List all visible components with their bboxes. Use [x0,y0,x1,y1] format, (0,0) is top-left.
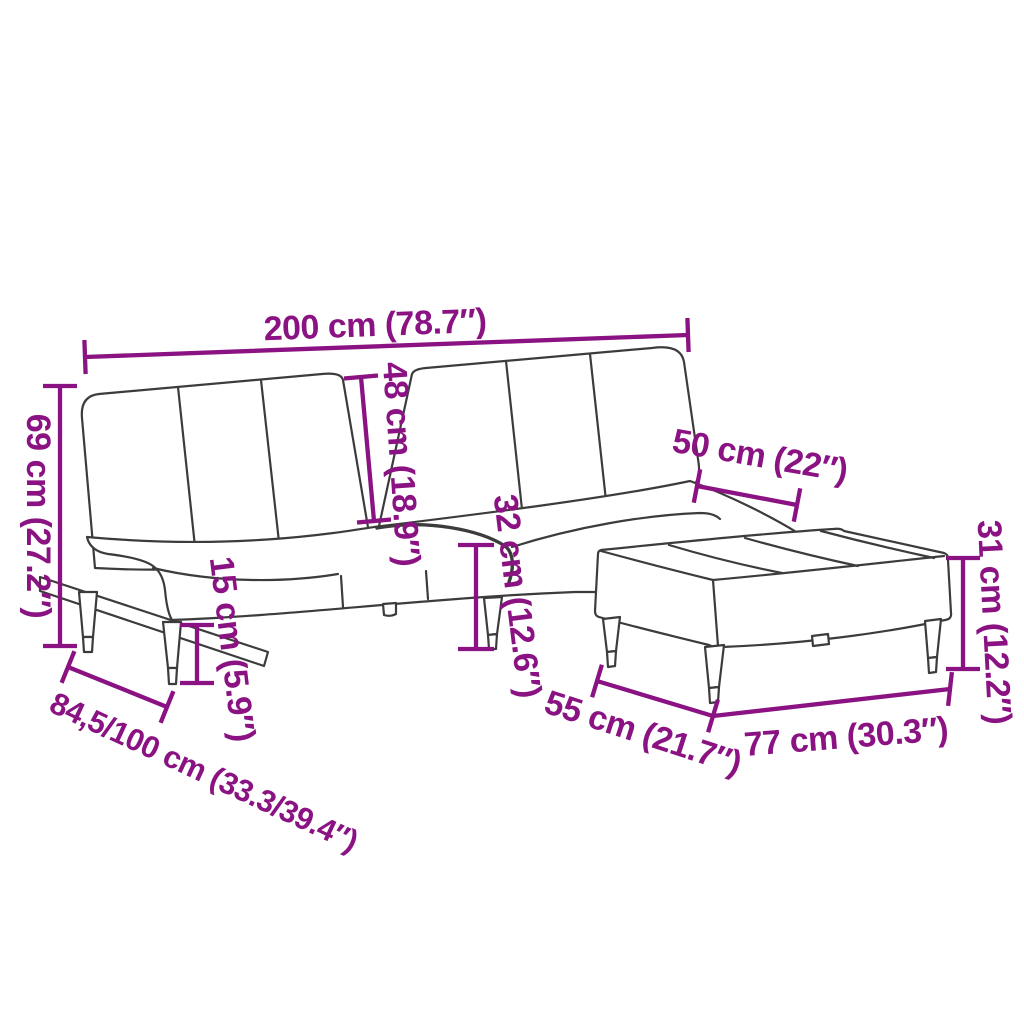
dim-label-footstool-width: 77 cm (30.3″) [743,710,950,764]
footstool-leg [705,645,724,688]
dim-line-footstool-width [713,672,952,716]
dim-label-overall-height: 69 cm (27.2″) [19,414,57,618]
footstool-clip [812,634,829,646]
dim-label-sofa-depth: 84,5/100 cm (33.3/39.4″) [45,685,364,859]
footstool-leg-foot [928,657,937,673]
footstool-leg [603,617,620,652]
sofa-leg [163,622,181,668]
sofa-leg-foot [168,668,177,684]
dim-label-overall-width: 200 cm (78.7″) [263,302,487,349]
dimension-diagram: 200 cm (78.7″) 69 cm (27.2″) 48 cm (18.9… [0,0,1024,1024]
footstool-leg [925,619,941,658]
sofa-leg-foot [83,637,93,652]
sofa-leg-foot [488,634,497,649]
frame-clip [383,603,396,616]
footstool-leg-foot [607,651,616,667]
sofa-leg [79,592,97,637]
diagram-canvas: 200 cm (78.7″) 69 cm (27.2″) 48 cm (18.9… [0,0,1024,1024]
dim-label-footstool-height: 31 cm (12.2″) [970,519,1019,725]
